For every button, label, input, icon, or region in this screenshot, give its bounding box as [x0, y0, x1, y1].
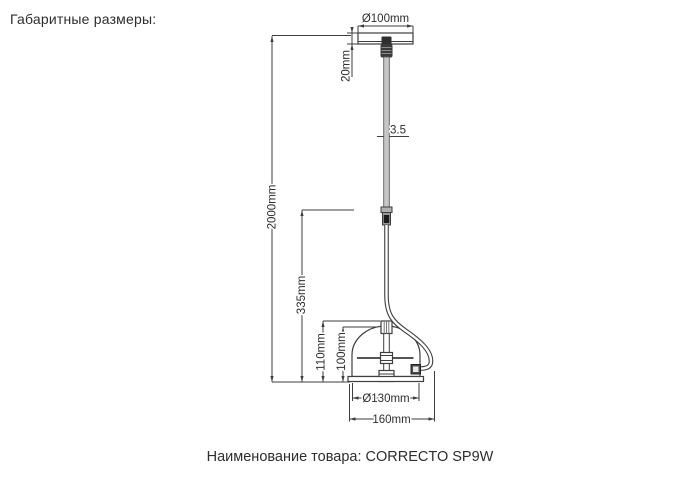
pendant-lamp	[348, 33, 431, 382]
label-shade-outer-height: 110mm	[316, 333, 328, 371]
label-canopy-diameter: Ø100mm	[362, 13, 409, 25]
technical-drawing: Ø100mm 20mm 3.5 2000mm 335mm 110mm 100mm…	[0, 0, 700, 483]
label-cable-diameter: 3.5	[390, 125, 406, 137]
cable-gland	[381, 37, 393, 58]
label-rod-length: 335mm	[296, 276, 308, 314]
product-caption: Наименование товара: CORRECTO SP9W	[0, 449, 700, 465]
cable-connector	[381, 207, 392, 225]
rod-fitting	[411, 365, 421, 375]
suspension-cable	[384, 57, 390, 208]
label-overall-width: 160mm	[372, 414, 410, 426]
label-suspension-length: 2000mm	[267, 185, 279, 230]
label-shade-height: 100mm	[336, 332, 348, 370]
label-shade-diameter: Ø130mm	[362, 393, 409, 405]
shade-rim	[348, 377, 424, 382]
label-canopy-height: 20mm	[341, 50, 353, 82]
